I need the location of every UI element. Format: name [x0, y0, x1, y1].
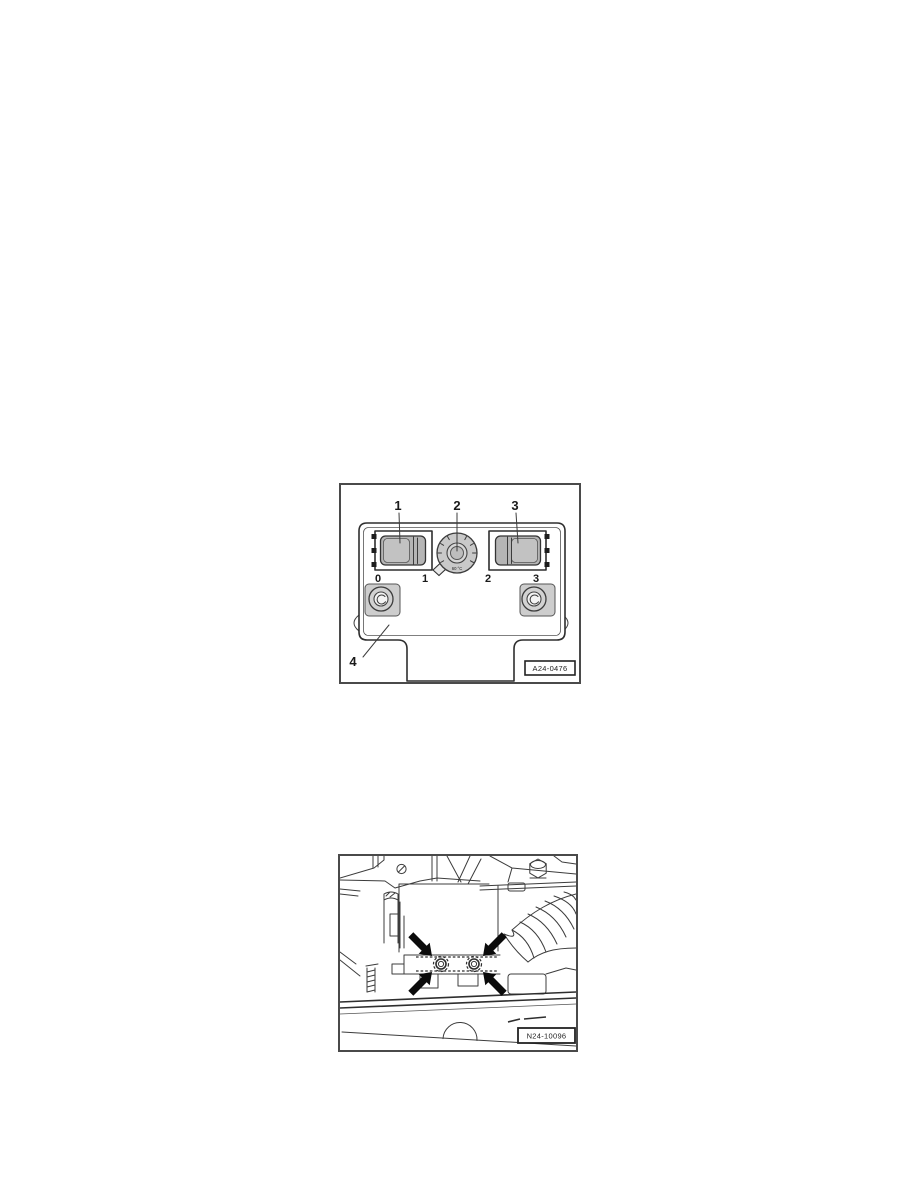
arrow-upper-right-icon	[483, 932, 507, 956]
hex-bolt	[530, 859, 546, 878]
callout-label-3: 3	[511, 498, 518, 513]
position-label-0: 0	[375, 573, 381, 585]
threaded-stud	[366, 964, 378, 992]
position-label-2: 2	[485, 573, 491, 585]
figure-heater-control-panel: 60 °C 0 1 2 3	[339, 483, 581, 684]
body-panel-lines	[340, 856, 576, 976]
connector-pin-icon	[372, 534, 377, 539]
figure-code-badge: A24-0476	[525, 661, 575, 675]
fitting-right	[467, 957, 482, 972]
right-bracket	[508, 968, 576, 994]
figure-engine-bay-fittings: N24-10096	[338, 854, 578, 1052]
figure-code-badge: N24-10096	[518, 1028, 575, 1043]
rocker-pad-right	[512, 539, 538, 563]
rocker-switch-right	[489, 531, 550, 570]
dial-scale-label: 60 °C	[452, 566, 463, 571]
figure-code: N24-10096	[527, 1032, 567, 1041]
rocker-pad-left	[384, 539, 410, 563]
arrow-lower-left-icon	[408, 972, 432, 996]
connector-pin-icon	[545, 548, 550, 553]
callout-label-4: 4	[349, 654, 357, 669]
connector-pin-icon	[372, 562, 377, 567]
connector-pin-icon	[372, 548, 377, 553]
position-label-3: 3	[533, 573, 539, 585]
callout-label-1: 1	[394, 498, 401, 513]
fitting-left	[434, 957, 449, 972]
connector-pin-icon	[545, 562, 550, 567]
arrow-upper-left-icon	[408, 932, 432, 956]
small-marks	[508, 1017, 546, 1022]
rocker-switch-left	[372, 531, 433, 570]
position-label-1: 1	[422, 573, 428, 585]
pointer-arrows	[408, 932, 506, 995]
engine-bay-illustration: N24-10096	[340, 856, 576, 1050]
round-knob-right	[520, 584, 555, 616]
corrugated-hose	[504, 892, 576, 962]
fitting-axis-lines	[416, 957, 498, 971]
figure-code: A24-0476	[533, 664, 568, 673]
control-panel-illustration: 60 °C 0 1 2 3	[341, 485, 579, 682]
fitting-manifold	[392, 955, 500, 988]
connector-pin-icon	[545, 534, 550, 539]
callout-label-2: 2	[453, 498, 460, 513]
floor-dome	[443, 1023, 477, 1041]
round-knob-left	[365, 584, 400, 616]
document-page: 60 °C 0 1 2 3	[0, 0, 918, 1188]
arrow-lower-right-icon	[483, 972, 507, 996]
